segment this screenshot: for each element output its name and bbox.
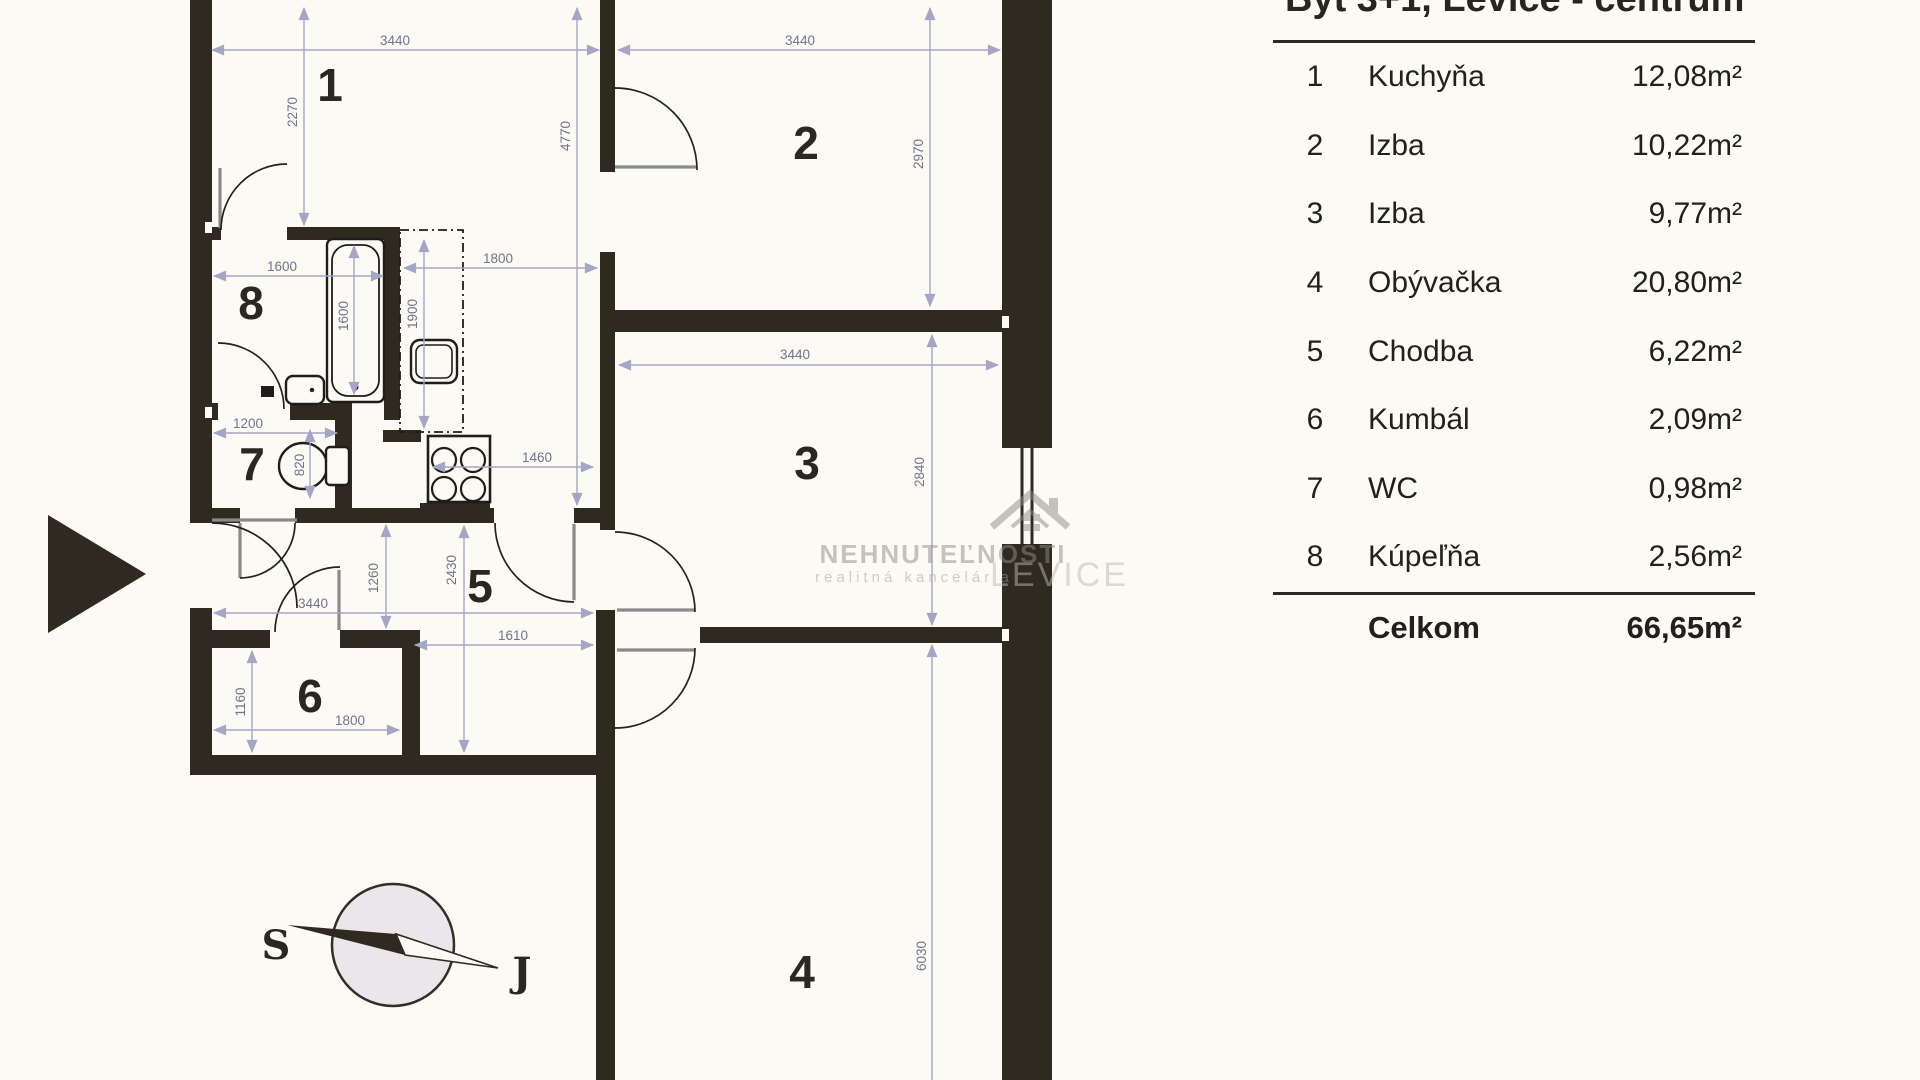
room-area: 10,22m² xyxy=(1632,129,1742,163)
door-arc xyxy=(615,88,697,170)
room-name: Kuchyňa xyxy=(1368,60,1485,94)
room-number-label: 6 xyxy=(297,670,323,722)
door-arc xyxy=(212,523,297,608)
room-name: Izba xyxy=(1368,129,1425,163)
page-title: Byt 3+1, Levice - centrum xyxy=(1285,0,1744,21)
room-number-label: 1 xyxy=(317,59,343,111)
room-name: Kumbál xyxy=(1368,403,1470,437)
sink-icon xyxy=(261,376,324,404)
dimension-label: 1800 xyxy=(483,251,513,266)
kitchen-sink-icon xyxy=(411,340,457,383)
door-arc xyxy=(218,343,284,409)
dimension-label: 1600 xyxy=(336,301,351,331)
room-area: 12,08m² xyxy=(1632,60,1742,94)
room-index: 5 xyxy=(1295,335,1335,369)
dimension-label: 1260 xyxy=(366,563,381,593)
room-number-label: 7 xyxy=(239,438,265,490)
dimension-label: 2270 xyxy=(285,97,300,127)
room-number-label: 2 xyxy=(793,117,819,169)
legend-row: 3 Izba 9,77m² xyxy=(1273,180,1760,249)
legend-row: 2 Izba 10,22m² xyxy=(1273,112,1760,181)
legend-row: 5 Chodba 6,22m² xyxy=(1273,317,1760,386)
legend-total-row: Celkom 66,65m² xyxy=(1273,595,1760,661)
door-swings xyxy=(212,88,697,728)
watermark-line3: LEVICE xyxy=(990,556,1129,594)
watermark-line2: realitná kancelária xyxy=(815,569,1013,586)
legend-row: 6 Kumbál 2,09m² xyxy=(1273,386,1760,455)
room-number-label: 5 xyxy=(467,560,493,612)
legend-rows: 1 Kuchyňa 12,08m² 2 Izba 10,22m² 3 Izba … xyxy=(1273,43,1760,661)
room-number-label: 3 xyxy=(794,437,820,489)
room-name: WC xyxy=(1368,472,1418,506)
room-area: 6,22m² xyxy=(1649,335,1742,369)
room-area: 2,56m² xyxy=(1649,540,1742,574)
room-number-labels: 1 2 3 4 5 6 7 8 xyxy=(238,59,820,998)
door-arc xyxy=(615,532,695,612)
door-arc xyxy=(221,164,287,230)
room-name: Obývačka xyxy=(1368,266,1501,300)
entrance-arrow-icon xyxy=(48,515,146,633)
compass: S J xyxy=(262,884,532,1006)
dimension-label: 3440 xyxy=(380,33,410,48)
room-number-label: 8 xyxy=(238,277,264,329)
dimension-label: 2840 xyxy=(912,457,927,487)
room-index: 2 xyxy=(1295,129,1335,163)
total-label: Celkom xyxy=(1368,610,1480,646)
room-index: 8 xyxy=(1295,540,1335,574)
room-number-label: 4 xyxy=(789,946,815,998)
dimension-label: 3440 xyxy=(785,33,815,48)
total-area: 66,65m² xyxy=(1627,610,1742,646)
room-index: 4 xyxy=(1295,266,1335,300)
dimension-label: 2970 xyxy=(911,139,926,169)
room-index: 3 xyxy=(1295,197,1335,231)
floorplan-page: 3440 3440 2270 4770 2970 1600 1800 1600 … xyxy=(0,0,1920,1080)
room-area: 20,80m² xyxy=(1632,266,1742,300)
kitchen-counter-dashed xyxy=(400,230,463,432)
legend-row: 8 Kúpeľňa 2,56m² xyxy=(1273,523,1760,592)
legend-row: 7 WC 0,98m² xyxy=(1273,455,1760,524)
door-arc xyxy=(495,523,574,602)
room-area: 0,98m² xyxy=(1649,472,1742,506)
dimension-label: 2430 xyxy=(444,555,459,585)
room-area: 2,09m² xyxy=(1649,403,1742,437)
dimension-label: 1800 xyxy=(335,713,365,728)
room-name: Izba xyxy=(1368,197,1425,231)
dimension-label: 1600 xyxy=(267,259,297,274)
dimension-label: 3440 xyxy=(298,596,328,611)
dimension-label: 4770 xyxy=(558,121,573,151)
watermark: NEHNUTEĽNOSTI realitná kancelária LEVICE xyxy=(815,494,1129,594)
room-index: 6 xyxy=(1295,403,1335,437)
compass-north-label: S xyxy=(262,922,291,969)
legend-row: 1 Kuchyňa 12,08m² xyxy=(1273,43,1760,112)
dimension-label: 820 xyxy=(292,454,307,477)
stove-icon xyxy=(428,436,490,502)
toilet-icon xyxy=(279,443,349,489)
room-name: Kúpeľňa xyxy=(1368,540,1480,574)
room-index: 1 xyxy=(1295,60,1335,94)
dimension-label: 1610 xyxy=(498,628,528,643)
door-arc xyxy=(615,648,695,728)
dimension-label: 1460 xyxy=(522,450,552,465)
legend-row: 4 Obývačka 20,80m² xyxy=(1273,249,1760,318)
dimension-label: 3440 xyxy=(780,347,810,362)
dimension-label: 1900 xyxy=(405,299,420,329)
compass-south-label: J xyxy=(510,949,532,996)
room-area: 9,77m² xyxy=(1649,197,1742,231)
room-name: Chodba xyxy=(1368,335,1473,369)
dimension-label: 6030 xyxy=(914,941,929,971)
dimension-label: 1200 xyxy=(233,416,263,431)
dimension-label: 1160 xyxy=(233,687,248,716)
room-index: 7 xyxy=(1295,472,1335,506)
